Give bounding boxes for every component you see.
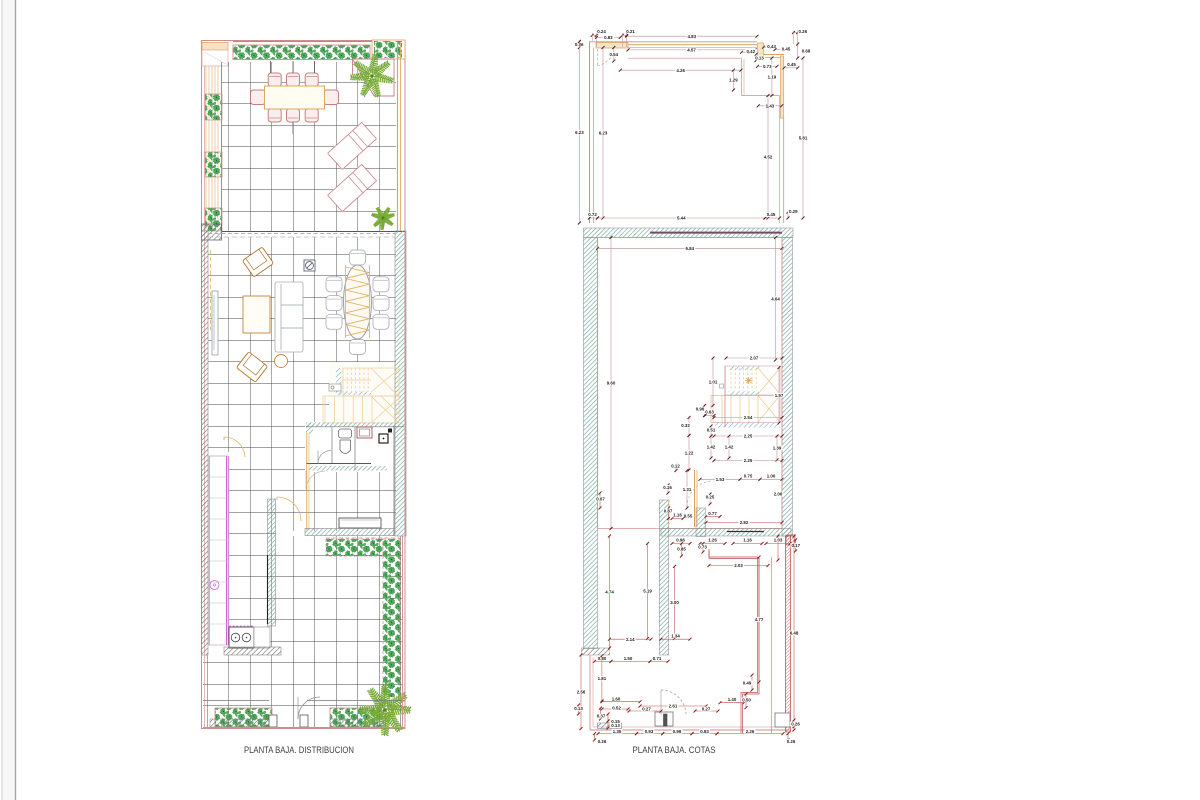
svg-text:0.45: 0.45 bbox=[787, 62, 796, 67]
svg-text:5.19: 5.19 bbox=[643, 589, 652, 594]
svg-text:2.07: 2.07 bbox=[750, 356, 759, 361]
svg-text:0.27: 0.27 bbox=[642, 707, 651, 712]
svg-text:1.42: 1.42 bbox=[707, 445, 716, 450]
svg-text:4.74: 4.74 bbox=[605, 590, 614, 595]
svg-text:1.22: 1.22 bbox=[685, 450, 694, 455]
svg-text:0.24: 0.24 bbox=[597, 29, 606, 34]
svg-text:4.26: 4.26 bbox=[676, 68, 685, 73]
svg-text:6.23: 6.23 bbox=[575, 130, 584, 135]
svg-text:0.27: 0.27 bbox=[702, 707, 711, 712]
svg-text:0.93: 0.93 bbox=[700, 729, 709, 734]
svg-text:1.31: 1.31 bbox=[683, 487, 692, 492]
svg-text:0.73: 0.73 bbox=[763, 64, 772, 69]
svg-text:2.54: 2.54 bbox=[744, 415, 753, 420]
svg-text:4.57: 4.57 bbox=[687, 48, 696, 53]
svg-text:0.77: 0.77 bbox=[708, 511, 717, 516]
svg-text:0.16: 0.16 bbox=[663, 485, 672, 490]
svg-text:2.26: 2.26 bbox=[746, 729, 755, 734]
svg-text:1.26: 1.26 bbox=[708, 538, 717, 543]
svg-text:1.35: 1.35 bbox=[613, 729, 622, 734]
svg-text:1.16: 1.16 bbox=[743, 538, 752, 543]
svg-text:4.64: 4.64 bbox=[771, 296, 780, 301]
svg-text:0.49: 0.49 bbox=[743, 680, 752, 685]
svg-text:2.03: 2.03 bbox=[734, 563, 743, 568]
svg-text:0.29: 0.29 bbox=[789, 209, 798, 214]
svg-text:0.13: 0.13 bbox=[611, 723, 620, 728]
svg-text:0.45: 0.45 bbox=[782, 46, 791, 51]
svg-text:0.73: 0.73 bbox=[698, 545, 707, 550]
svg-text:0.54: 0.54 bbox=[610, 52, 619, 57]
svg-text:4.77: 4.77 bbox=[755, 617, 764, 622]
svg-text:0.26: 0.26 bbox=[791, 722, 800, 727]
svg-text:1.16: 1.16 bbox=[673, 513, 682, 518]
svg-text:1.29: 1.29 bbox=[729, 78, 738, 83]
svg-text:0.26: 0.26 bbox=[799, 29, 808, 34]
svg-text:PLANTA BAJA. DISTRIBUCION: PLANTA BAJA. DISTRIBUCION bbox=[244, 745, 354, 755]
svg-text:0.85: 0.85 bbox=[677, 547, 686, 552]
svg-text:2.06: 2.06 bbox=[774, 492, 783, 497]
svg-text:1.81: 1.81 bbox=[598, 676, 607, 681]
svg-text:1.53: 1.53 bbox=[716, 477, 725, 482]
svg-text:0.45: 0.45 bbox=[767, 212, 776, 217]
svg-text:5.81: 5.81 bbox=[799, 136, 808, 141]
svg-text:0.96: 0.96 bbox=[696, 407, 705, 412]
svg-text:0.26: 0.26 bbox=[787, 739, 796, 744]
svg-text:0.71: 0.71 bbox=[653, 656, 662, 661]
svg-text:0.75: 0.75 bbox=[744, 474, 753, 479]
svg-text:6.23: 6.23 bbox=[599, 130, 608, 135]
svg-text:2.25: 2.25 bbox=[744, 434, 753, 439]
svg-text:0.80: 0.80 bbox=[598, 656, 607, 661]
svg-text:0.07: 0.07 bbox=[596, 497, 605, 502]
svg-text:0.17: 0.17 bbox=[792, 543, 801, 548]
svg-text:0.55: 0.55 bbox=[684, 514, 693, 519]
svg-text:0.83: 0.83 bbox=[604, 35, 613, 40]
svg-text:0.43: 0.43 bbox=[767, 44, 776, 49]
svg-text:1.01: 1.01 bbox=[709, 379, 718, 384]
svg-text:0.13: 0.13 bbox=[574, 706, 583, 711]
svg-text:PLANTA BAJA. COTAS: PLANTA BAJA. COTAS bbox=[633, 745, 716, 755]
svg-text:1.34: 1.34 bbox=[671, 633, 680, 638]
svg-text:0.26: 0.26 bbox=[598, 739, 607, 744]
svg-text:0.72: 0.72 bbox=[588, 212, 597, 217]
svg-text:0.96: 0.96 bbox=[676, 538, 685, 543]
svg-text:0.13: 0.13 bbox=[755, 56, 764, 61]
svg-text:0.21: 0.21 bbox=[626, 29, 635, 34]
svg-text:0.63: 0.63 bbox=[705, 409, 714, 414]
svg-text:0.12: 0.12 bbox=[671, 463, 680, 468]
svg-text:9.60: 9.60 bbox=[607, 381, 616, 386]
svg-text:2.14: 2.14 bbox=[626, 637, 635, 642]
svg-text:1.03: 1.03 bbox=[774, 538, 783, 543]
svg-text:4.52: 4.52 bbox=[764, 154, 773, 159]
svg-text:1.40: 1.40 bbox=[728, 697, 737, 702]
svg-text:6.84: 6.84 bbox=[685, 246, 694, 251]
svg-text:2.82: 2.82 bbox=[740, 520, 749, 525]
svg-text:6.48: 6.48 bbox=[790, 631, 799, 636]
svg-text:0.50: 0.50 bbox=[742, 697, 751, 702]
svg-text:2.61: 2.61 bbox=[669, 704, 678, 709]
svg-text:0.93: 0.93 bbox=[645, 729, 654, 734]
svg-text:3.00: 3.00 bbox=[670, 600, 679, 605]
svg-text:1.50: 1.50 bbox=[624, 656, 633, 661]
svg-text:0.37: 0.37 bbox=[597, 714, 606, 719]
svg-text:0.52: 0.52 bbox=[612, 706, 621, 711]
svg-text:1.43: 1.43 bbox=[766, 103, 775, 108]
svg-text:1.60: 1.60 bbox=[612, 697, 621, 702]
svg-text:4.83: 4.83 bbox=[688, 34, 697, 39]
svg-text:1.97: 1.97 bbox=[775, 393, 784, 398]
svg-text:0.25: 0.25 bbox=[706, 495, 715, 500]
svg-text:2.25: 2.25 bbox=[744, 458, 753, 463]
svg-text:1.19: 1.19 bbox=[768, 74, 777, 79]
svg-text:0.42: 0.42 bbox=[747, 49, 756, 54]
svg-text:1.00: 1.00 bbox=[767, 474, 776, 479]
svg-text:0.87: 0.87 bbox=[664, 509, 673, 514]
svg-text:0.99: 0.99 bbox=[673, 729, 682, 734]
svg-text:5.44: 5.44 bbox=[677, 216, 686, 221]
svg-text:0.68: 0.68 bbox=[802, 49, 811, 54]
svg-text:0.32: 0.32 bbox=[681, 423, 690, 428]
svg-text:2.56: 2.56 bbox=[577, 689, 586, 694]
svg-text:0.51: 0.51 bbox=[707, 428, 716, 433]
svg-text:1.42: 1.42 bbox=[725, 445, 734, 450]
svg-text:1.39: 1.39 bbox=[773, 446, 782, 451]
